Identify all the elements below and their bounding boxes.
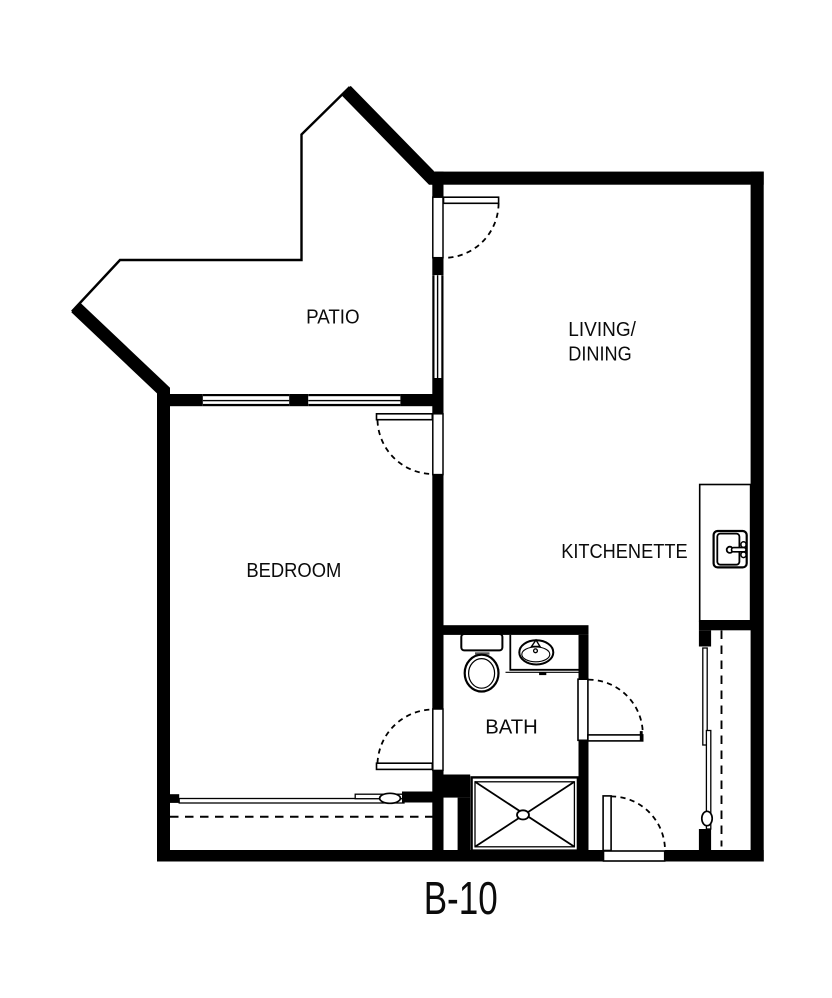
svg-text:BEDROOM: BEDROOM [246,559,341,582]
svg-text:KITCHENETTE: KITCHENETTE [561,540,687,563]
svg-text:PATIO: PATIO [306,305,360,328]
svg-text:DINING: DINING [568,343,631,366]
svg-text:BATH: BATH [485,715,538,738]
svg-text:B-10: B-10 [424,872,498,924]
svg-text:LIVING/: LIVING/ [568,318,636,341]
